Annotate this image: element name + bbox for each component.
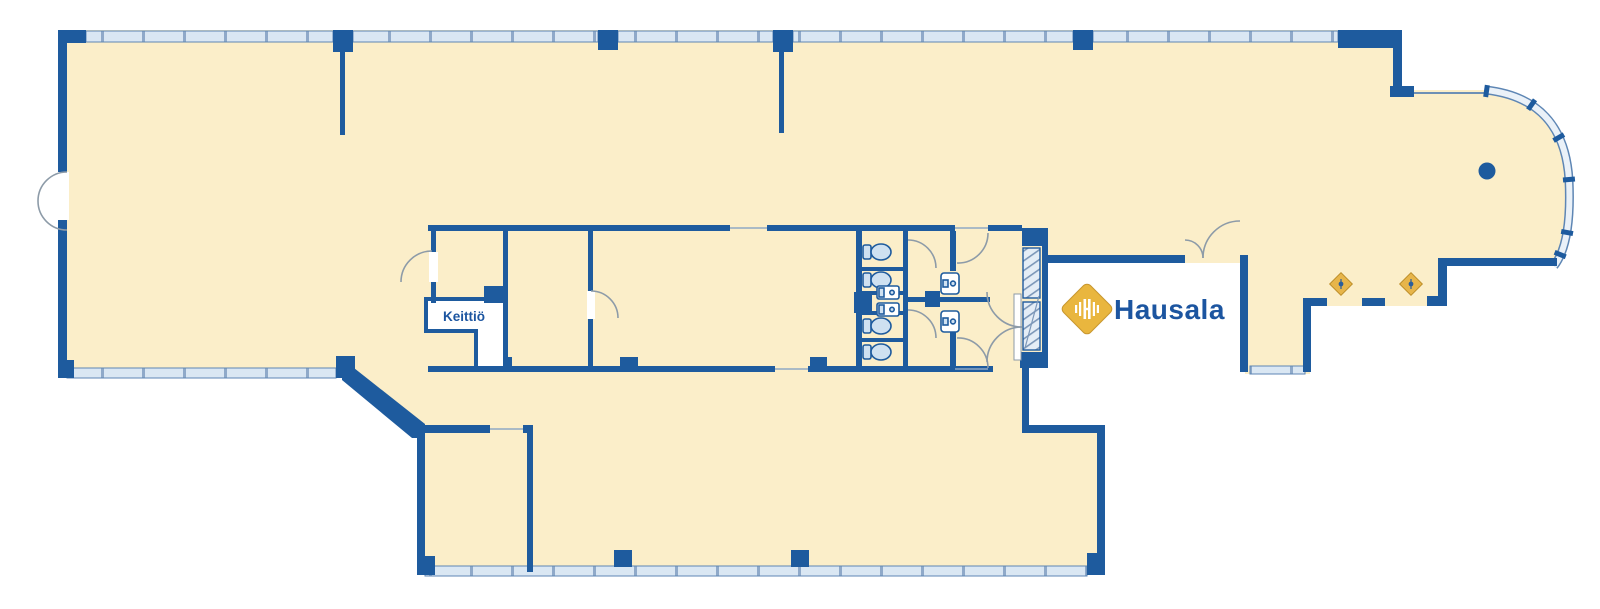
window-band-extension: [425, 566, 1087, 576]
sink-icon: [877, 303, 899, 316]
window-bay-bottom: [1250, 366, 1305, 374]
hausala-diamond-icon: [1060, 282, 1114, 336]
floor-plan-page: Hausala Keittiö: [0, 0, 1600, 609]
partition-stub: [779, 50, 784, 133]
floor-plan-canvas: Hausala Keittiö: [0, 0, 1600, 609]
kitchen-label: Keittiö: [443, 309, 485, 324]
sink-icon: [877, 286, 899, 299]
toilet-icon: [863, 244, 891, 260]
sink-icon: [941, 273, 959, 294]
window-band-top: [793, 31, 1073, 42]
window-band-top: [353, 31, 598, 42]
hausala-logo: Hausala: [1060, 282, 1225, 336]
partition-stub: [340, 50, 345, 135]
toilet-icon: [863, 318, 891, 334]
sink-icon: [941, 311, 959, 332]
window-band-bottom-left: [67, 368, 336, 378]
building-footprint: [58, 30, 1569, 575]
window-band-top: [86, 31, 333, 42]
floor-area: [58, 30, 1569, 575]
column-dot: [1479, 163, 1496, 180]
brand-name: Hausala: [1114, 294, 1225, 325]
toilet-icon: [863, 344, 891, 360]
window-band-top: [618, 31, 773, 42]
window-band-top: [1093, 31, 1338, 42]
